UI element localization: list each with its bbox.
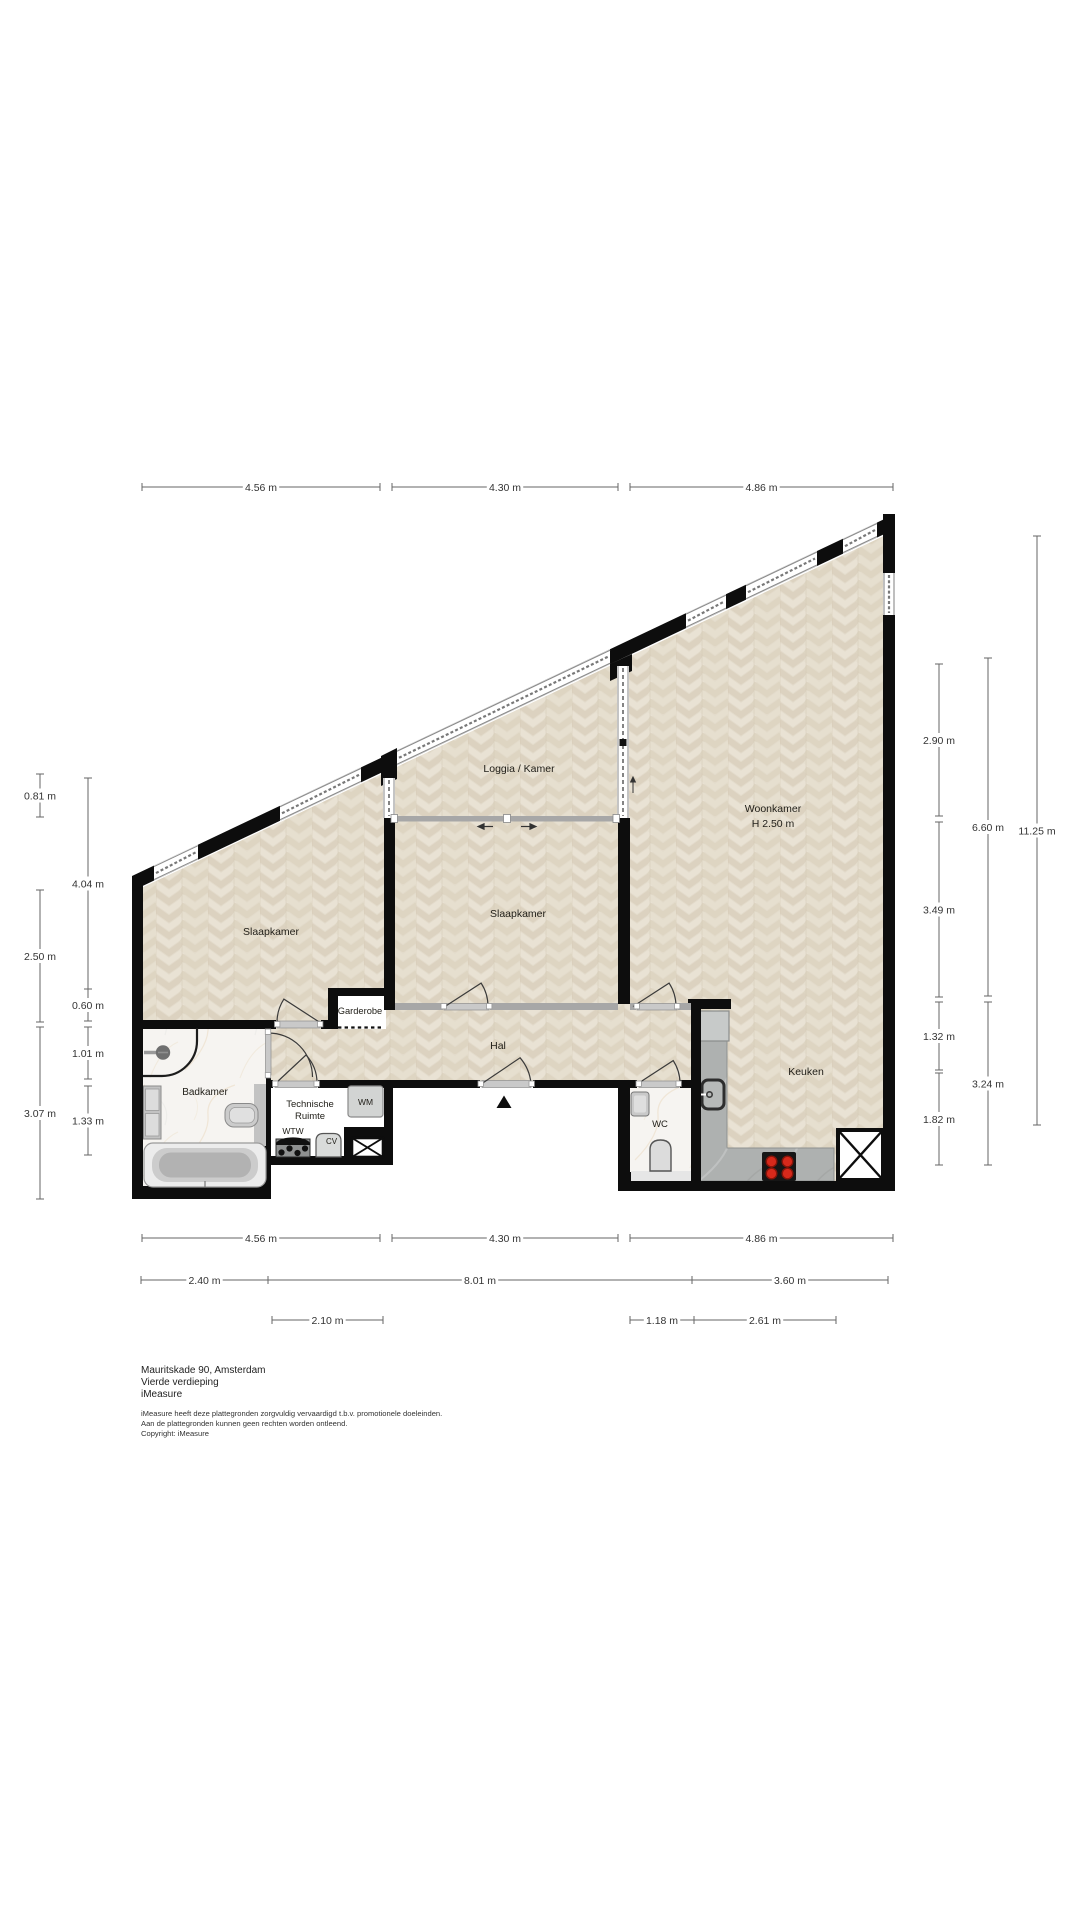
svg-text:Badkamer: Badkamer bbox=[182, 1087, 228, 1098]
svg-text:Hal: Hal bbox=[490, 1040, 506, 1052]
svg-text:4.56 m: 4.56 m bbox=[245, 482, 277, 494]
svg-text:Copyright: iMeasure: Copyright: iMeasure bbox=[141, 1429, 209, 1438]
svg-text:WM: WM bbox=[358, 1097, 373, 1107]
svg-text:Vierde verdieping: Vierde verdieping bbox=[141, 1377, 219, 1388]
svg-text:8.01 m: 8.01 m bbox=[464, 1275, 496, 1287]
svg-text:3.07 m: 3.07 m bbox=[24, 1108, 56, 1120]
svg-text:Aan de plattegronden kunnen ge: Aan de plattegronden kunnen geen rechten… bbox=[141, 1419, 347, 1428]
svg-text:Woonkamer: Woonkamer bbox=[745, 803, 802, 815]
svg-text:0.60 m: 0.60 m bbox=[72, 1000, 104, 1012]
svg-text:3.60 m: 3.60 m bbox=[774, 1275, 806, 1287]
svg-text:Slaapkamer: Slaapkamer bbox=[490, 908, 547, 920]
svg-text:4.04 m: 4.04 m bbox=[72, 878, 104, 890]
svg-text:iMeasure: iMeasure bbox=[141, 1389, 183, 1400]
svg-text:4.30 m: 4.30 m bbox=[489, 482, 521, 494]
svg-text:iMeasure heeft deze plattegron: iMeasure heeft deze plattegronden zorgvu… bbox=[141, 1409, 442, 1418]
svg-text:2.90 m: 2.90 m bbox=[923, 735, 955, 747]
svg-text:1.32 m: 1.32 m bbox=[923, 1031, 955, 1043]
svg-text:2.40 m: 2.40 m bbox=[188, 1275, 220, 1287]
svg-text:4.86 m: 4.86 m bbox=[745, 1233, 777, 1245]
svg-text:Mauritskade 90, Amsterdam: Mauritskade 90, Amsterdam bbox=[141, 1365, 266, 1376]
svg-text:Slaapkamer: Slaapkamer bbox=[243, 926, 300, 938]
svg-text:1.82 m: 1.82 m bbox=[923, 1114, 955, 1126]
svg-text:11.25 m: 11.25 m bbox=[1018, 825, 1055, 837]
svg-text:4.56 m: 4.56 m bbox=[245, 1233, 277, 1245]
svg-text:CV: CV bbox=[326, 1137, 338, 1146]
svg-text:3.49 m: 3.49 m bbox=[923, 904, 955, 916]
svg-text:1.01 m: 1.01 m bbox=[72, 1048, 104, 1060]
svg-text:Keuken: Keuken bbox=[788, 1066, 824, 1078]
svg-text:WC: WC bbox=[652, 1119, 668, 1130]
svg-text:Garderobe: Garderobe bbox=[338, 1006, 382, 1016]
svg-text:1.18 m: 1.18 m bbox=[646, 1315, 678, 1327]
svg-text:2.10 m: 2.10 m bbox=[311, 1315, 343, 1327]
svg-text:2.50 m: 2.50 m bbox=[24, 951, 56, 963]
svg-text:3.24 m: 3.24 m bbox=[972, 1078, 1004, 1090]
svg-text:H 2.50 m: H 2.50 m bbox=[752, 818, 795, 830]
svg-text:Ruimte: Ruimte bbox=[295, 1111, 325, 1122]
svg-text:WTW: WTW bbox=[282, 1126, 303, 1136]
svg-text:4.86 m: 4.86 m bbox=[745, 482, 777, 494]
svg-text:0.81 m: 0.81 m bbox=[24, 790, 56, 802]
svg-text:4.30 m: 4.30 m bbox=[489, 1233, 521, 1245]
svg-text:Loggia / Kamer: Loggia / Kamer bbox=[483, 763, 555, 775]
svg-text:Technische: Technische bbox=[286, 1099, 334, 1110]
svg-text:6.60 m: 6.60 m bbox=[972, 822, 1004, 834]
svg-text:2.61 m: 2.61 m bbox=[749, 1315, 781, 1327]
svg-text:1.33 m: 1.33 m bbox=[72, 1115, 104, 1127]
